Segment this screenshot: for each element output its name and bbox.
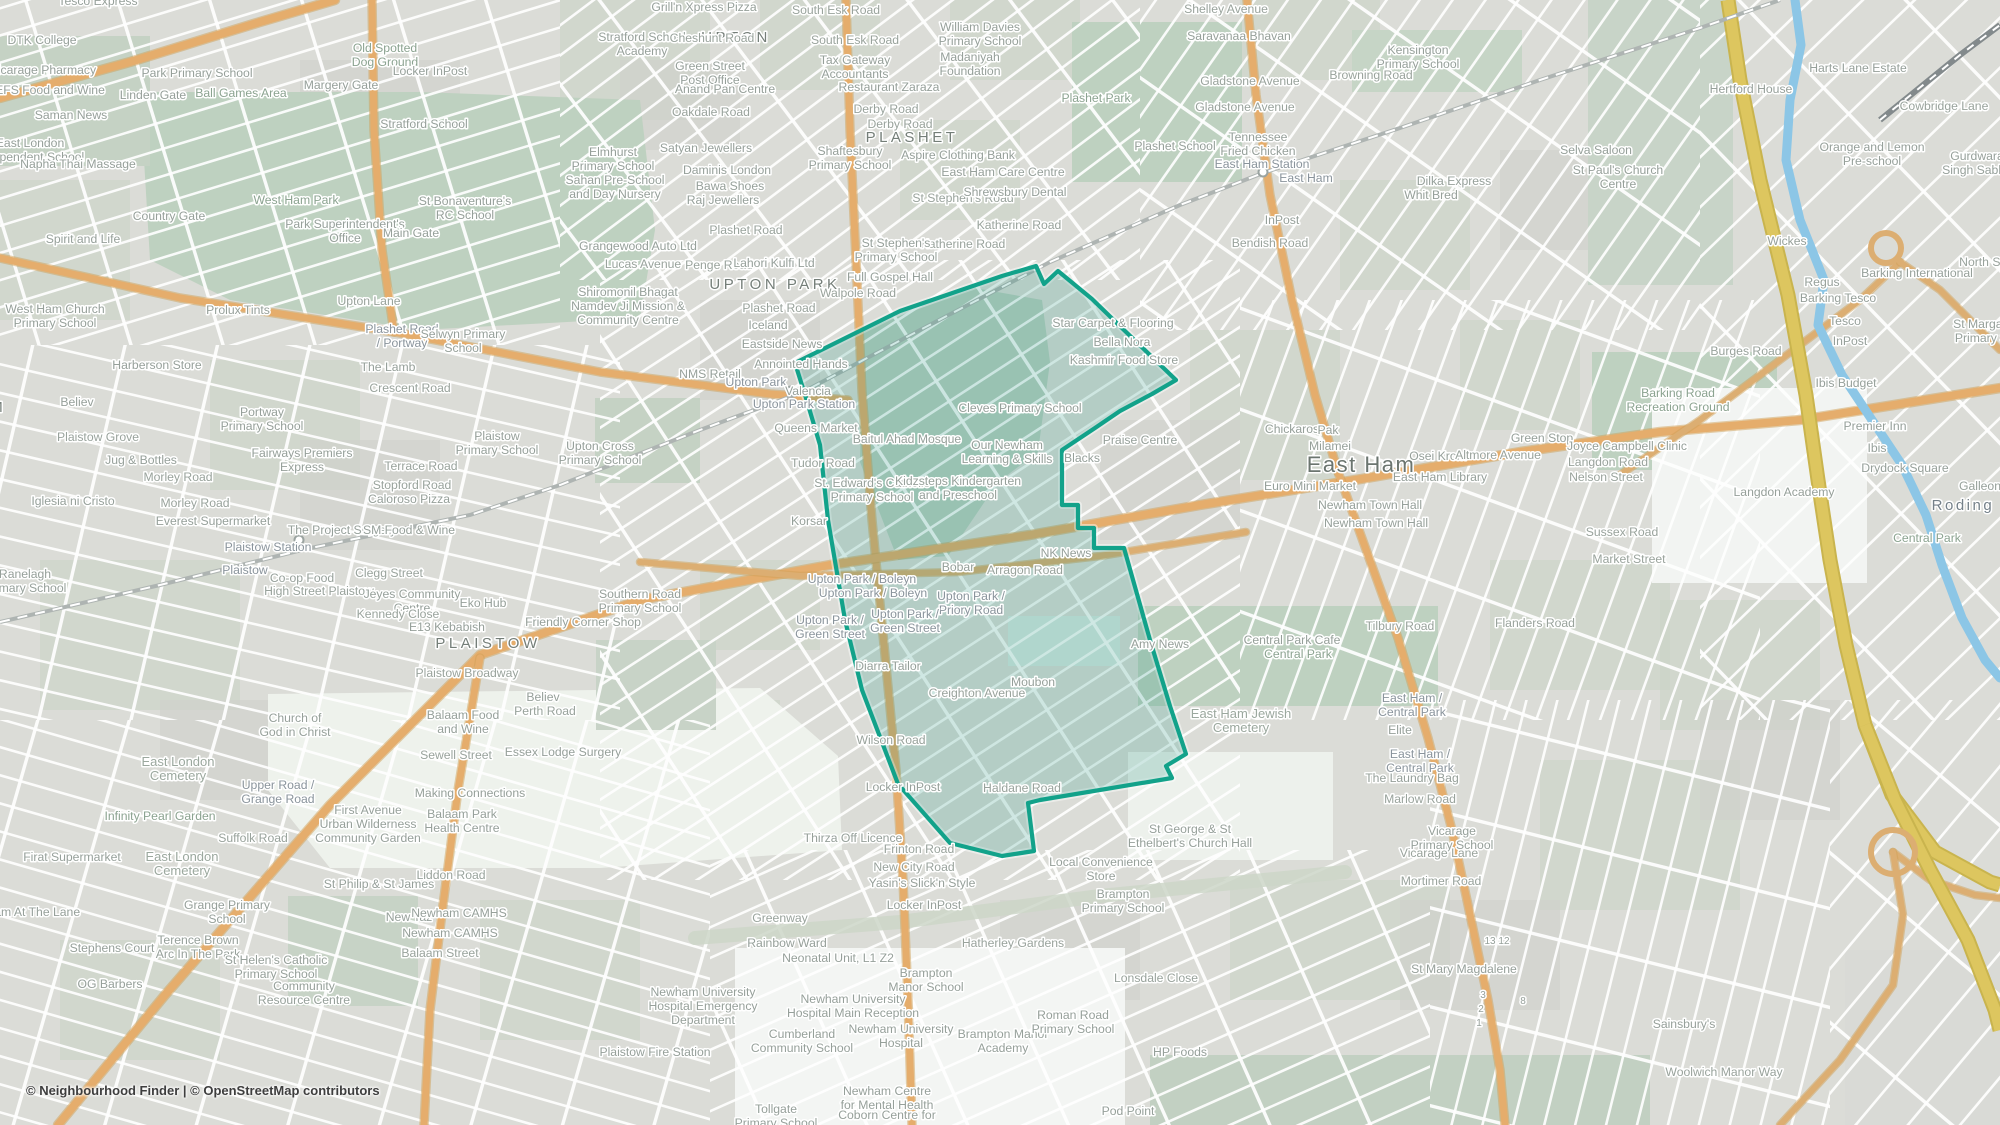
map-label: NK News xyxy=(1041,546,1092,560)
map-label: Plaistow Station xyxy=(225,540,312,554)
map-label: Sewell Street xyxy=(420,748,492,762)
map-label: Katherine Road xyxy=(977,218,1062,232)
map-label: Eastside News xyxy=(742,337,823,351)
map-label: TennesseeFried Chicken xyxy=(1220,130,1295,158)
map-label: E13 Kebabish xyxy=(409,620,485,634)
map-label: Central Park xyxy=(1893,531,1962,545)
map-label: Nelson Street xyxy=(1569,470,1643,484)
map-label: Clegg Street xyxy=(355,566,423,580)
map-label: Wickes xyxy=(1767,234,1806,248)
map-label: 13 12 xyxy=(1484,936,1509,947)
map-label: Tudor Road xyxy=(791,456,855,470)
map-label: Rainbow Ward xyxy=(747,936,826,950)
map-label: Everest Supermarket xyxy=(156,514,271,528)
map-label: Mortimer Road xyxy=(1401,874,1482,888)
map-label: St Philip & St James xyxy=(324,877,434,891)
map-label: Barking Tesco xyxy=(1800,291,1877,305)
map-label: Regus xyxy=(1804,275,1839,289)
map-label: Spirit and Life xyxy=(46,232,121,246)
map-label: Queens Market xyxy=(774,421,858,435)
map-label: Upton Park /Green Street xyxy=(795,613,865,641)
map-label: Infinity Pearl Garden xyxy=(104,809,215,823)
map-label: Annointed Hands xyxy=(754,357,848,371)
map-label: Anand Pan Centre xyxy=(675,82,776,96)
map-label: Milamei xyxy=(1309,439,1351,453)
map-label: Aspire Clothing Bank xyxy=(901,148,1016,162)
map-label: OG Barbers xyxy=(77,977,142,991)
map-label: Stephens Court xyxy=(70,941,155,955)
map-label: Upton Park Station xyxy=(753,397,855,411)
map-label: GurdwaraSingh Sabha xyxy=(1942,149,2000,177)
map-viewport[interactable]: UPTONPLASHETUPTON PARKPLAISTOWWEST HAMEa… xyxy=(0,0,2000,1125)
map-label: Derby Road xyxy=(853,102,918,116)
map-label: High Street Plaistow xyxy=(264,584,374,598)
map-label: Langdon Academy xyxy=(1734,485,1836,499)
map-label: St Mary Magdalene xyxy=(1411,962,1517,976)
map-label: Friendly Corner Shop xyxy=(525,615,641,629)
map-label: St MargaretsPrimary Sch xyxy=(1953,317,2000,345)
map-label: Star Carpet & Flooring xyxy=(1052,316,1173,330)
map-label: Tax GatewayAccountants xyxy=(820,53,891,81)
map-label: Eko Hub xyxy=(460,596,507,610)
map-label: Premier Inn xyxy=(1844,419,1907,433)
map-label: Kashmir Food Store xyxy=(1070,353,1179,367)
map-label: Believ xyxy=(60,395,94,409)
map-label: Euro Mini Market xyxy=(1264,479,1357,493)
map-label: East LondonCemetery xyxy=(141,754,214,783)
map-label: Newham UniversityHospital Main Reception xyxy=(787,992,919,1020)
map-label: Essex Lodge Surgery xyxy=(505,745,622,759)
map-label: Browning Road xyxy=(1329,68,1412,82)
map-label: Altmore Avenue xyxy=(1455,448,1541,462)
map-label: East Ham Station xyxy=(1215,157,1310,171)
map-svg: UPTONPLASHETUPTON PARKPLAISTOWWEST HAMEa… xyxy=(0,0,2000,1125)
map-label: Shrewsbury Dental xyxy=(964,185,1067,199)
map-label: Plashet Road xyxy=(742,301,815,315)
map-label: Elite xyxy=(1388,723,1412,737)
map-label: Daminis London xyxy=(683,163,771,177)
map-label: Suffolk Road xyxy=(218,831,288,845)
map-label: Frinton Road xyxy=(884,842,954,856)
map-label: Cowbridge Lane xyxy=(1900,99,1989,113)
map-label: PLAISTOW xyxy=(435,635,540,652)
map-label: Roman RoadPrimary School xyxy=(1032,1008,1115,1036)
map-label: Whit Bred xyxy=(1404,188,1458,202)
map-label: Iceland xyxy=(748,318,787,332)
map-label: Upton CrossPrimary School xyxy=(559,439,642,467)
map-label: Lucas Avenue xyxy=(605,257,682,271)
map-label: Pak xyxy=(1317,423,1339,437)
map-label: Katherine Road xyxy=(921,237,1006,251)
map-label: Valencia xyxy=(785,384,831,398)
map-label: Full Gospel Hall xyxy=(847,270,933,284)
map-label: Sahan Pre-Schooland Day Nursery xyxy=(566,173,665,201)
map-label: Balaam Foodand Wine xyxy=(427,708,500,736)
map-label: Plashet Road xyxy=(709,223,782,237)
map-label: Balaam At The Lane xyxy=(0,905,80,919)
map-label: Haldane Road xyxy=(983,781,1061,795)
map-label: Main Gate xyxy=(383,226,439,240)
map-label: Locker InPost xyxy=(887,898,962,912)
map-label: Drydock Square xyxy=(1861,461,1949,475)
map-label: Central Park xyxy=(1264,647,1333,661)
map-label: SM Food & Wine xyxy=(363,523,455,537)
map-label: Park Primary School xyxy=(141,66,252,80)
map-label: South Esk Road xyxy=(811,33,899,47)
map-label: 1 xyxy=(1476,1018,1482,1029)
map-label: Upton Park xyxy=(726,375,788,389)
map-label: Shiromonil BhagatNamdev Ji Mission &Comm… xyxy=(571,285,685,327)
map-label: East LondonCemetery xyxy=(145,849,218,878)
map-label: Stopford Road xyxy=(373,478,452,492)
map-label: Newham Town Hall xyxy=(1318,498,1422,512)
map-label: Balaam ParkHealth Centre xyxy=(424,807,499,835)
map-label: Greenway xyxy=(752,911,808,925)
map-label: Flanders Road xyxy=(1495,616,1575,630)
block-tint xyxy=(0,180,130,320)
map-label: 3 xyxy=(1480,990,1486,1001)
map-label: Tilbury Road xyxy=(1366,619,1435,633)
map-label: KensingtonPrimary School xyxy=(1377,43,1460,71)
map-label: Locker InPost xyxy=(866,780,941,794)
map-label: Southern RoadPrimary School xyxy=(599,587,682,615)
map-label: Oakdale Road xyxy=(672,105,750,119)
map-label: East Ham Care Centre xyxy=(941,165,1064,179)
map-label: Prolux Tints xyxy=(206,303,270,317)
map-label: InPost xyxy=(1265,213,1300,227)
map-label: Crescent Road xyxy=(369,381,450,395)
map-label: Plaistow xyxy=(222,563,268,577)
map-label: Praise Centre xyxy=(1103,433,1178,447)
map-label: Wilson Road xyxy=(856,733,925,747)
map-label: Making Connections xyxy=(415,786,525,800)
map-label: Upton Park / Boleyn xyxy=(819,586,927,600)
map-label: EFS Food and Wine xyxy=(0,83,105,97)
map-label: Margery Gate xyxy=(304,78,379,92)
map-label: St Stephen'sPrimary School xyxy=(855,236,938,264)
map-label: Country Gate xyxy=(133,209,206,223)
map-label: Moubon xyxy=(1011,675,1055,689)
map-label: Grill'n Xpress Pizza xyxy=(651,0,756,14)
map-label: Lahori Kulfi Ltd xyxy=(733,256,814,270)
map-label: 8 xyxy=(1520,996,1526,1007)
map-label: Satyan Jewellers xyxy=(660,141,752,155)
map-label: Ball Games Area xyxy=(195,86,287,100)
map-label: Firat Supermarket xyxy=(23,850,121,864)
map-label: Yasin's Slick'n Style xyxy=(869,876,976,890)
map-label: Upton Park / Boleyn xyxy=(808,572,916,586)
map-label: Upton Park /Green Street xyxy=(870,607,940,635)
attribution[interactable]: © Neighbourhood Finder | © OpenStreetMap… xyxy=(26,1083,380,1098)
map-label: North Street xyxy=(1959,255,2000,269)
map-label: Dilka Express xyxy=(1417,174,1492,188)
map-label: Cleves Primary School xyxy=(958,401,1081,415)
map-label: Newham CAMHS xyxy=(402,926,498,940)
map-label: Grangewood Auto Ltd xyxy=(579,239,697,253)
map-label: HP Foods xyxy=(1153,1045,1207,1059)
map-label: Selva Saloon xyxy=(1560,143,1632,157)
map-label: Harberson Store xyxy=(112,358,202,372)
map-label: Shelley Avenue xyxy=(1184,2,1268,16)
map-label: Co-op Food xyxy=(270,571,334,585)
map-label: Perth Road xyxy=(514,704,576,718)
map-label: East Ham xyxy=(1279,171,1333,185)
map-label: Ibis xyxy=(1868,441,1887,455)
map-label: Blacks xyxy=(1064,451,1100,465)
map-label: Pod Point xyxy=(1102,1104,1155,1118)
attribution-text[interactable]: © Neighbourhood Finder | © OpenStreetMap… xyxy=(26,1083,380,1098)
map-label: Barking International xyxy=(1861,266,1973,280)
map-label: Amy News xyxy=(1131,637,1189,651)
map-label: Derby Road xyxy=(867,117,932,131)
map-label: Harts Lane Estate xyxy=(1809,61,1907,75)
map-label: Hertford House xyxy=(1710,82,1793,96)
map-label: Church ofGod in Christ xyxy=(259,711,331,739)
map-label: MadaniyahFoundation xyxy=(940,50,1001,78)
map-label: Neonatal Unit, L1 Z2 xyxy=(782,951,894,965)
map-label: Morley Road xyxy=(160,496,229,510)
map-label: Green Stop xyxy=(1511,431,1574,445)
map-label: Vicarage Pharmacy xyxy=(0,63,97,77)
map-label: Plaistow Grove xyxy=(57,430,139,444)
map-label: Ibis Budget xyxy=(1816,376,1878,390)
map-label: Central Park Cafe xyxy=(1244,633,1341,647)
map-label: Cheshunt Road xyxy=(670,31,755,45)
map-label: Plaistow Broadway xyxy=(416,666,520,680)
map-label: WEST HAM xyxy=(0,399,6,416)
map-label: St Helen's CatholicPrimary School xyxy=(225,953,328,981)
map-label: Baitul Ahad Mosque xyxy=(853,432,962,446)
map-label: Diarra Tailor xyxy=(855,659,920,673)
map-label: Chickaros xyxy=(1265,422,1319,436)
map-label: The Lamb xyxy=(361,360,416,374)
map-label: Galleon xyxy=(1959,479,2000,493)
map-label: Hatherley Gardens xyxy=(962,936,1064,950)
map-label: Iglesia ni Cristo xyxy=(31,494,115,508)
map-label: East Ham Library xyxy=(1393,470,1488,484)
map-label: InPost xyxy=(1833,334,1868,348)
map-label: Linden Gate xyxy=(120,88,187,102)
map-label: ShaftesburyPrimary School xyxy=(809,144,892,172)
map-label: Tesco xyxy=(1829,314,1861,328)
map-label: Our NewhamLearning & Skills xyxy=(962,438,1053,466)
map-label: William DaviesPrimary School xyxy=(939,20,1022,48)
map-label: Locker InPost xyxy=(393,64,468,78)
map-label: 2 xyxy=(1478,1004,1484,1015)
map-label: Tesco Express xyxy=(58,0,137,8)
map-label: Korsar xyxy=(791,514,827,528)
map-label: Plashet School xyxy=(1134,139,1215,153)
map-label: Plashet Park xyxy=(1061,91,1131,105)
map-label: Morley Road xyxy=(143,470,212,484)
map-label: Napha Thai Massage xyxy=(20,157,136,171)
map-label: Believ xyxy=(526,690,560,704)
map-label: Market Street xyxy=(1592,552,1666,566)
map-label: West Ham Park xyxy=(253,193,339,207)
map-label: Upper Road /Grange Road xyxy=(241,778,314,806)
map-label: Sainsbury's xyxy=(1653,1017,1716,1031)
plaistow-green xyxy=(596,640,716,730)
map-label: Sussex Road xyxy=(1586,525,1659,539)
map-label: West Ham ChurchPrimary School xyxy=(5,302,104,330)
map-label: Bawa Shoes xyxy=(696,179,764,193)
map-label: Joyce Campbell Clinic xyxy=(1567,439,1687,453)
map-label: The Laundry Bag xyxy=(1365,771,1459,785)
map-label: BramptonManor School xyxy=(888,966,963,994)
map-label: Newham Town Hall xyxy=(1324,516,1428,530)
map-label: Gladstone Avenue xyxy=(1195,100,1295,114)
map-label: Coborn Centre for xyxy=(838,1108,936,1122)
map-label: Stratford School xyxy=(380,117,467,131)
map-label: Bella Nora xyxy=(1094,335,1151,349)
map-label: East Ham /Central Park xyxy=(1378,691,1447,719)
map-label: Marlow Road xyxy=(1384,792,1456,806)
map-label: Saman News xyxy=(35,108,107,122)
map-label: Barking RoadRecreation Ground xyxy=(1627,386,1730,414)
map-label: Balaam Street xyxy=(401,946,479,960)
map-label: Jug & Bottles xyxy=(105,453,177,467)
map-label: Raj Jewellers xyxy=(687,193,759,207)
map-label: Woolwich Manor Way xyxy=(1665,1065,1783,1079)
map-label: South Esk Road xyxy=(792,3,880,17)
map-label: Kennedy Close xyxy=(357,607,440,621)
map-label: DTK College xyxy=(7,33,76,47)
map-label: Langdon Road xyxy=(1568,455,1648,469)
map-label: Lonsdale Close xyxy=(1114,971,1198,985)
map-label: Gladstone Avenue xyxy=(1200,74,1300,88)
map-label: Bobar xyxy=(942,560,975,574)
map-label: Saravanaa Bhavan xyxy=(1187,29,1291,43)
map-label: Vicarage Lane xyxy=(1400,846,1479,860)
map-label: Newham CAMHS xyxy=(411,906,507,920)
map-label: Caloroso Pizza xyxy=(368,492,450,506)
map-label: Bendish Road xyxy=(1232,236,1309,250)
map-label: Restaurant Zaraza xyxy=(839,80,940,94)
map-label: Walpole Road xyxy=(820,286,896,300)
map-label: Upton Park /Priory Road xyxy=(937,589,1005,617)
map-label: Plaistow Fire Station xyxy=(599,1045,710,1059)
map-label: Burges Road xyxy=(1710,344,1781,358)
map-label: Roding River xyxy=(1932,497,2000,514)
map-label: Terrace Road xyxy=(384,459,457,473)
map-label: Upton Lane xyxy=(337,294,400,308)
map-label: Arragon Road xyxy=(987,563,1063,577)
map-label: New City Road xyxy=(873,860,954,874)
